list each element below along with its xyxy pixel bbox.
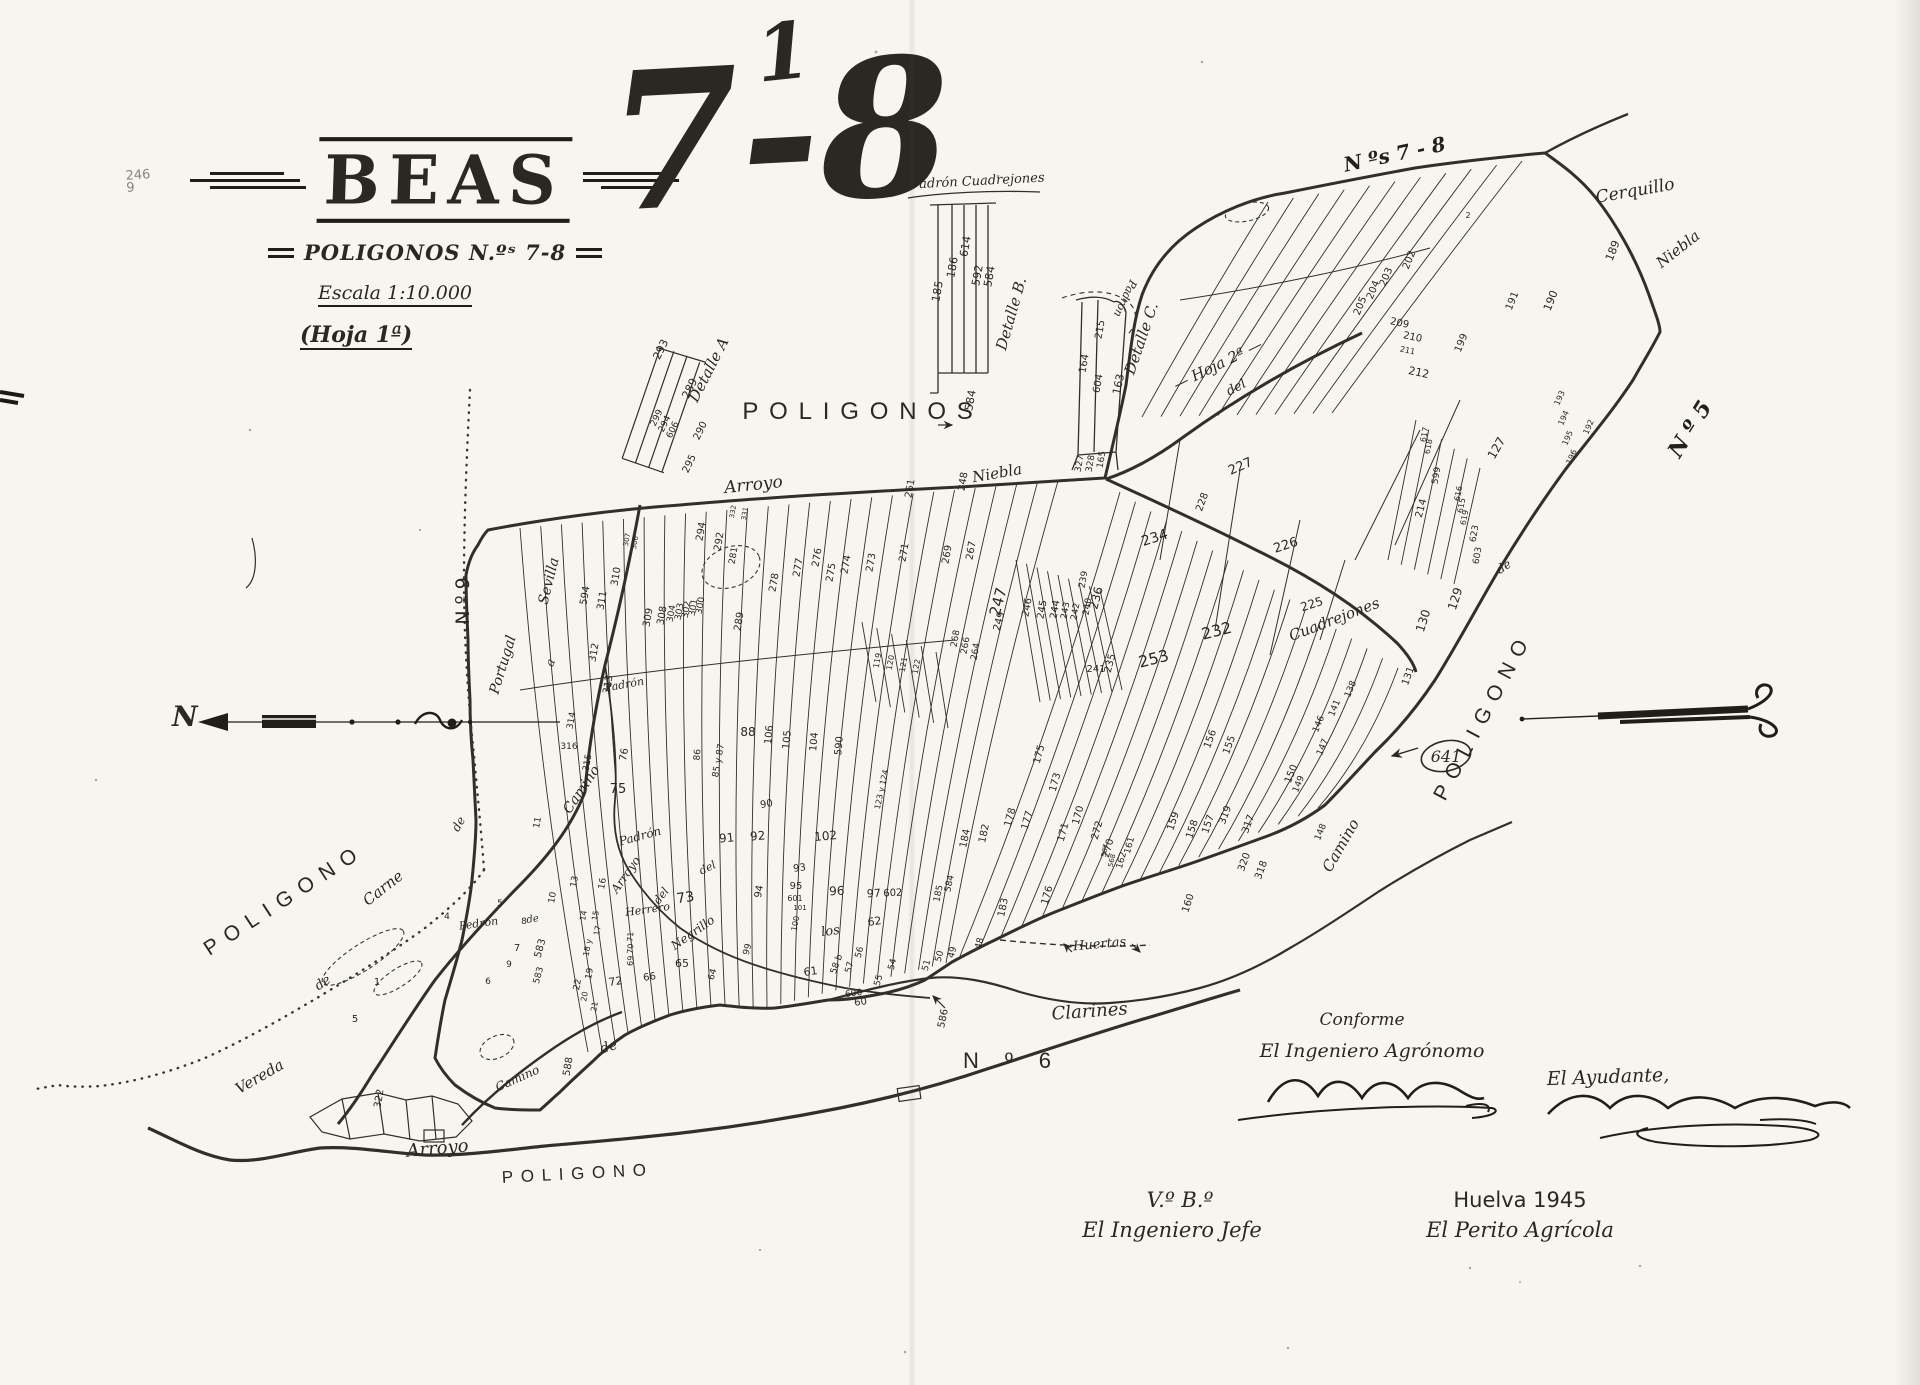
map-label: 14	[578, 910, 589, 922]
map-label: 62	[867, 914, 883, 929]
parcel-line	[1298, 658, 1382, 816]
map-label: 61	[803, 964, 819, 979]
map-label: 245	[1035, 599, 1049, 620]
map-label: 316	[560, 742, 577, 752]
map-label: 176	[1040, 885, 1056, 906]
map-label: 300	[695, 596, 708, 615]
map-label: 121	[898, 656, 910, 673]
map-canvas: 641 ArroyoNieblaCerquilloNieblaClarinesA…	[0, 0, 1920, 1385]
map-label: 195	[1560, 429, 1574, 447]
map-label: 194	[1556, 409, 1570, 427]
map-label: 15	[590, 910, 601, 922]
map-label: 242	[1070, 602, 1083, 621]
map-label: 264	[970, 642, 983, 661]
map-label: 295	[681, 453, 699, 475]
map-label: 100	[790, 915, 802, 932]
assistant-title: El Ayudante,	[1546, 1064, 1669, 1090]
north-arrow	[198, 713, 560, 731]
signature-ayudante	[1548, 1096, 1850, 1114]
map-label: 131	[1400, 665, 1417, 687]
map-label: 157	[1200, 813, 1216, 835]
map-label: 210	[1402, 330, 1423, 345]
map-label: Portugal	[486, 634, 519, 697]
map-label: 48	[974, 936, 987, 950]
map-label: 146	[1311, 714, 1327, 734]
map-label: 278	[767, 572, 781, 593]
scanned-cadastral-map-sheet: 246 9 BEAS POLIGONOS N.ºˢ 7-8 Escala 1:1…	[0, 0, 1920, 1385]
map-label: 314	[566, 711, 579, 730]
map-label: 184	[958, 828, 973, 849]
map-label: 64	[707, 967, 720, 981]
map-label: los	[820, 923, 841, 940]
map-label: 185	[929, 280, 945, 303]
signature-ingeniero-agronomo	[1268, 1080, 1484, 1102]
map-label: 204	[1365, 279, 1382, 301]
map-label: Detalle B.	[992, 275, 1030, 353]
map-label: 322	[372, 1088, 386, 1109]
map-label: Arroyo	[721, 472, 783, 498]
map-label: 85 y 87	[711, 743, 727, 778]
map-label: Clarines	[1051, 998, 1128, 1024]
map-label: 6	[485, 977, 491, 987]
map-label: Carne	[359, 867, 407, 910]
vobo-label: V.º B.º	[1147, 1188, 1214, 1212]
map-label: 20	[579, 991, 590, 1003]
map-label: 160	[1180, 892, 1196, 914]
map-label: 97	[866, 887, 881, 901]
map-label: 588	[561, 1056, 575, 1077]
map-label: 171	[1056, 822, 1072, 843]
map-label: de	[526, 913, 540, 926]
map-label: 274	[839, 554, 853, 575]
parcel-line	[921, 646, 933, 723]
map-label: 310	[609, 566, 623, 587]
map-label: 11	[532, 816, 544, 829]
map-label: 246	[1020, 597, 1034, 618]
map-label: 320	[1236, 851, 1253, 873]
parcel-line	[1059, 541, 1197, 915]
map-label: 234	[1140, 526, 1170, 550]
map-label: 19	[584, 967, 596, 980]
map-label: POLIGONO	[1429, 628, 1537, 804]
map-label: 170	[1071, 805, 1087, 826]
signatures-ink	[1238, 1080, 1850, 1146]
road-camino-west	[338, 505, 640, 1124]
parcel-line	[960, 492, 1120, 956]
map-label: 190	[1541, 289, 1561, 313]
map-label: 261	[903, 478, 917, 499]
map-label: 147	[1315, 737, 1331, 757]
map-label: 273	[864, 552, 878, 573]
decorative-rule	[1520, 685, 1777, 736]
parcel-line	[1100, 590, 1122, 690]
map-label: 91	[718, 830, 734, 845]
map-label: 228	[1194, 491, 1211, 513]
map-label: 331	[740, 506, 750, 521]
map-label: Arroyo	[404, 1135, 470, 1162]
map-label: 182	[977, 823, 992, 844]
map-label: 50	[934, 949, 947, 963]
map-label: 202	[1401, 249, 1418, 271]
map-label: 267	[964, 540, 978, 561]
map-label: 583	[533, 938, 549, 959]
map-label: 212	[1407, 364, 1430, 381]
map-label: 106	[763, 725, 776, 745]
map-label: 159	[1165, 810, 1181, 832]
map-label: Vereda	[232, 1056, 287, 1098]
map-label: Pedrón	[457, 914, 499, 933]
map-label: 93	[793, 862, 807, 875]
map-label: 235	[1103, 653, 1119, 674]
map-label: 69	[626, 955, 636, 966]
map-label: 239	[1078, 570, 1091, 589]
parcel-line	[1016, 560, 1040, 702]
map-label: 162	[1115, 851, 1129, 870]
map-label: 590	[833, 736, 846, 756]
map-label: 277	[791, 557, 805, 578]
engineer-title: El Ingeniero Agrónomo	[1260, 1040, 1485, 1062]
parcel-line	[1058, 575, 1081, 696]
map-label: 49	[947, 945, 960, 959]
map-label: 9	[506, 960, 512, 970]
map-label: de	[449, 814, 469, 834]
north-letter: N	[172, 700, 198, 733]
map-label: 240	[1082, 597, 1095, 616]
map-label: 71	[626, 931, 636, 942]
map-label: 94	[753, 884, 766, 898]
parcel-line	[1294, 169, 1471, 414]
map-label: Huertas	[1072, 935, 1128, 955]
map-label: 76	[618, 747, 631, 761]
parcel-line	[1048, 571, 1071, 697]
map-label: 178	[1003, 807, 1019, 828]
map-label: 275	[824, 562, 838, 583]
map-label: 306	[630, 535, 640, 550]
map-label: 138	[1343, 679, 1359, 699]
map-label: 227	[1226, 455, 1255, 479]
map-label: 156	[1202, 728, 1219, 750]
map-label: N º 5	[1662, 396, 1717, 463]
interior-roads	[338, 114, 1628, 1125]
map-label: 601	[787, 894, 802, 903]
map-label: 86	[693, 748, 704, 761]
map-label: 95	[790, 881, 803, 892]
map-label: 248	[956, 471, 970, 492]
parcel-line	[1142, 202, 1268, 417]
map-label: 1	[374, 977, 380, 988]
map-label: Niebla	[1652, 227, 1703, 273]
map-label: Padrón	[616, 824, 662, 849]
map-label: 272	[1090, 820, 1106, 841]
road-northeast-exit	[1545, 114, 1628, 153]
map-label: 13	[569, 875, 581, 888]
map-label: 105	[781, 730, 794, 750]
map-label: 225	[1299, 594, 1325, 614]
map-label: 123 y 124	[873, 769, 890, 810]
map-label: Sevilla	[536, 556, 563, 606]
map-label: 54	[887, 957, 900, 971]
chief-title: El Ingeniero Jefe	[1082, 1218, 1261, 1242]
map-label: N ºs 7 - 8	[1340, 132, 1447, 177]
dotted-tracks	[36, 390, 484, 1089]
map-label: N º 6	[963, 1048, 1061, 1073]
map-label: 161	[1123, 836, 1137, 855]
map-label: 4	[444, 912, 450, 922]
map-label: 226	[1272, 535, 1300, 557]
parcel-line	[603, 521, 643, 1039]
map-label: 70	[626, 943, 636, 954]
parcel-line	[1258, 639, 1351, 833]
road-camino-west	[338, 505, 640, 1124]
map-label: 214	[1414, 498, 1430, 519]
map-label: 18 y	[582, 938, 594, 957]
map-label: POLIGONO	[200, 839, 370, 960]
map-label: 148	[1313, 822, 1329, 842]
map-label: 55	[873, 974, 886, 988]
parcel-line	[1027, 564, 1051, 701]
road-cuadrejones	[1106, 479, 1416, 672]
map-label: 186	[944, 256, 960, 279]
map-label: 101	[793, 904, 806, 912]
parcel-line	[1199, 190, 1344, 416]
map-label: Padrón Cuadrejones	[910, 171, 1046, 193]
parcel-line	[1278, 648, 1367, 824]
map-label: 594	[578, 585, 592, 606]
parcel-line	[1000, 512, 1151, 940]
map-label: 599	[1431, 466, 1444, 485]
detalle-a-inset	[618, 345, 706, 474]
parcel-line	[1069, 579, 1092, 695]
map-label: 8	[521, 917, 527, 927]
parcel-line	[946, 481, 1058, 963]
map-label: 65	[675, 957, 689, 970]
map-label: 193	[1552, 389, 1566, 407]
map-label: 318	[1253, 859, 1270, 881]
map-label: 311	[595, 590, 609, 611]
map-label: 215	[1093, 319, 1107, 340]
map-label: 584	[981, 265, 997, 288]
parcel-line	[683, 514, 698, 1025]
map-label: 205	[1352, 295, 1369, 317]
map-label: 73	[676, 889, 696, 907]
map-label: 209	[1389, 316, 1410, 331]
map-label: 129	[1445, 586, 1465, 612]
map-label: 90	[759, 798, 773, 811]
map-label: 293	[650, 337, 671, 362]
interior-details	[0, 199, 1460, 1142]
map-label: 294	[694, 521, 708, 542]
map-label: 56	[854, 945, 867, 959]
parcel-line	[752, 506, 769, 1011]
map-label: 10	[547, 891, 559, 904]
map-label: 189	[1603, 239, 1623, 263]
map-label: 158	[1184, 818, 1200, 840]
map-label: 191	[1504, 290, 1521, 312]
map-label: 5	[352, 1014, 358, 1025]
map-label: 127	[1485, 435, 1509, 462]
map-label: 211	[1399, 345, 1416, 357]
map-label: 119	[872, 652, 884, 669]
road-cuadrejones	[1106, 479, 1416, 672]
parcel-line	[1388, 420, 1416, 560]
map-label: 2	[1465, 211, 1470, 220]
map-label: 281	[728, 546, 741, 565]
place-year: Huelva 1945	[1453, 1188, 1586, 1212]
map-label: POLIGONO	[501, 1160, 654, 1187]
map-label: POLIGONOS	[742, 398, 983, 425]
map-label: 7	[514, 943, 520, 954]
map-label: 317	[1240, 813, 1257, 835]
map-label: Herrero	[623, 900, 671, 919]
map-label: Camino	[493, 1062, 541, 1094]
map-label: 66	[643, 971, 657, 984]
map-label: 312	[587, 642, 601, 663]
map-label: 269	[940, 544, 954, 565]
map-label: 75	[610, 782, 627, 797]
surveyor-title: El Perito Agrícola	[1426, 1218, 1614, 1242]
map-label: Cerquillo	[1594, 174, 1676, 208]
map-label: 623	[1469, 524, 1482, 543]
parcel-line	[1313, 165, 1497, 413]
map-label: 155	[1221, 734, 1238, 756]
map-label: 232	[1200, 618, 1234, 644]
map-label: N º 9	[452, 577, 474, 624]
map-label: 290	[692, 420, 710, 442]
map-label: 602	[883, 888, 903, 900]
parcel-line	[936, 652, 948, 728]
scan-speckles	[95, 51, 1641, 1354]
map-label: 51	[921, 959, 934, 973]
streams	[148, 665, 1512, 1161]
map-label: 16	[597, 877, 609, 890]
map-label: 122	[911, 658, 923, 675]
map-label: 614	[957, 235, 973, 258]
map-label: 618	[1423, 438, 1435, 455]
map-label: 57	[844, 961, 857, 975]
map-label: 584	[943, 874, 956, 893]
parcel-line	[1180, 194, 1319, 416]
map-label: 604	[1091, 373, 1105, 394]
map-label: 319	[1217, 804, 1234, 826]
map-label: 271	[897, 542, 911, 563]
map-label: 130	[1413, 608, 1433, 634]
map-label: 619	[1459, 509, 1471, 526]
map-label: 96	[829, 884, 845, 899]
map-label: 173	[1048, 772, 1064, 793]
map-label: 88	[740, 725, 755, 739]
map-label: 102	[814, 828, 838, 844]
map-label: 22	[572, 978, 584, 991]
parcel-line	[1037, 568, 1061, 700]
map-label: 289	[732, 611, 746, 632]
map-labels-layer: ArroyoNieblaCerquilloNieblaClarinesArroy…	[200, 132, 1718, 1187]
map-label: del	[697, 858, 718, 877]
parcel-line	[906, 640, 919, 718]
map-label: 253	[1137, 646, 1171, 672]
map-label: 175	[1032, 744, 1048, 765]
map-label: 21	[589, 1001, 600, 1013]
map-label: 332	[728, 504, 738, 519]
map-label: 104	[808, 732, 821, 752]
map-label: 17	[592, 925, 603, 937]
map-label: 603	[1472, 546, 1485, 565]
map-label: 183	[996, 897, 1011, 918]
conforme-label: Conforme	[1319, 1010, 1404, 1030]
map-label: 120	[885, 654, 897, 671]
map-label: 583	[532, 966, 546, 985]
map-label: 177	[1020, 810, 1036, 831]
map-label: 72	[608, 974, 624, 989]
map-label: 199	[1453, 332, 1470, 354]
map-label: 5	[497, 899, 503, 909]
map-label: 309	[641, 607, 655, 628]
map-label: 586	[936, 1008, 951, 1029]
map-label: 92	[749, 828, 765, 843]
map-label: 164	[1077, 353, 1091, 374]
